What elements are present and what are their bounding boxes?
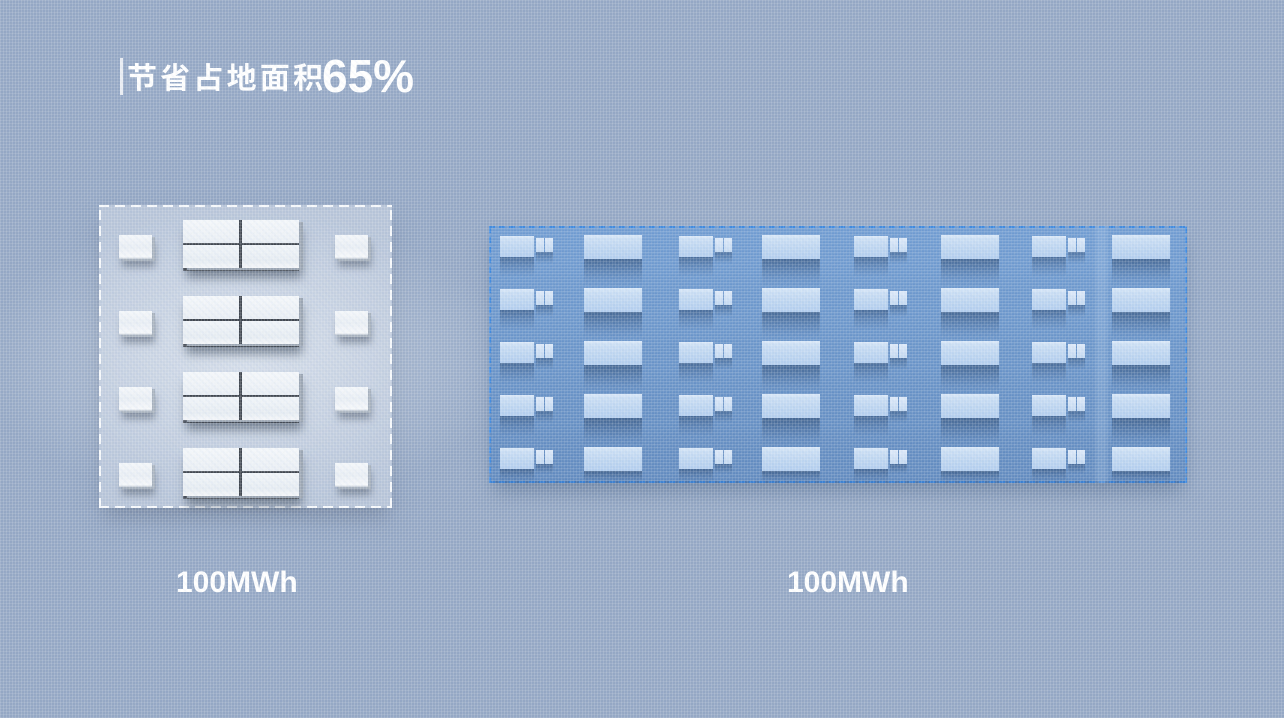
svg-text:65%: 65% <box>322 50 414 102</box>
